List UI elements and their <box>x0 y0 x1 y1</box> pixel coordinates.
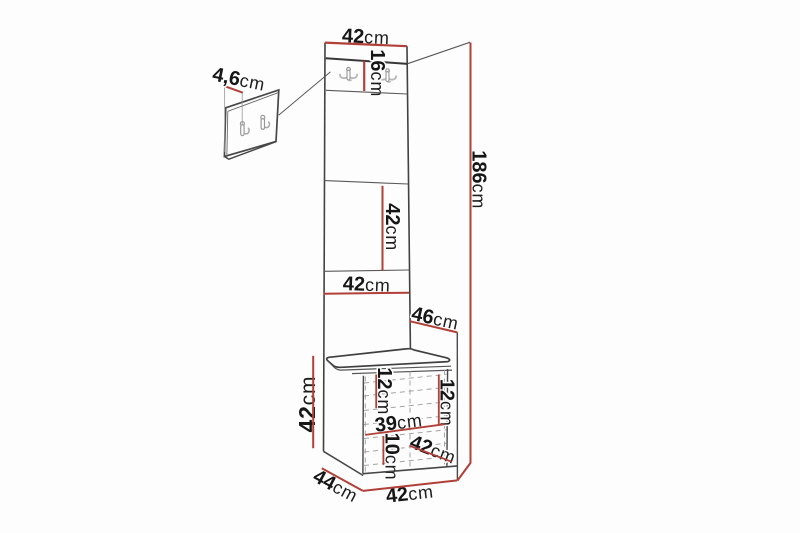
svg-text:16cm: 16cm <box>366 49 388 97</box>
svg-text:42cm: 42cm <box>294 376 320 433</box>
svg-text:42cm: 42cm <box>381 203 403 251</box>
